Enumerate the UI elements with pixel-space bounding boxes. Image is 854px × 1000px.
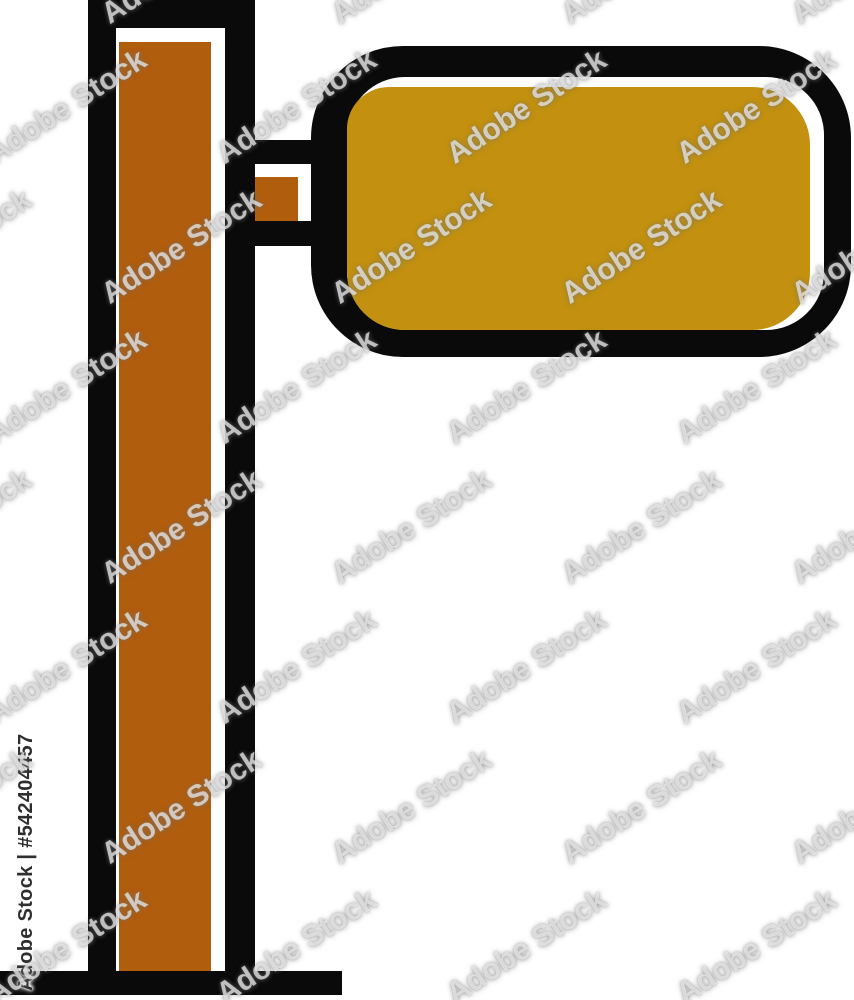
watermark-tile: Adobe Stock bbox=[0, 0, 38, 31]
signpost-base bbox=[0, 971, 342, 995]
watermark-tile: Adobe Stock bbox=[0, 183, 38, 311]
signpost-pole-fill bbox=[119, 42, 211, 971]
watermark-credit: Adobe Stock | #542404457 bbox=[15, 734, 38, 991]
watermark-tile: Adobe Stock bbox=[556, 743, 728, 871]
watermark-tile: Adobe Stock bbox=[326, 743, 498, 871]
watermark-tile: Adobe Stock bbox=[326, 0, 498, 31]
watermark-tile: Adobe Stock bbox=[441, 603, 613, 731]
stock-preview-canvas: Adobe Stock | #542404457 Adobe StockAdob… bbox=[0, 0, 854, 1000]
watermark-tile: Adobe Stock bbox=[671, 603, 843, 731]
watermark-tile: Adobe Stock bbox=[786, 743, 854, 871]
watermark-tile: Adobe Stock bbox=[441, 883, 613, 1000]
watermark-tile: Adobe Stock bbox=[0, 743, 38, 871]
watermark-tile: Adobe Stock bbox=[326, 463, 498, 591]
sign-board-fill bbox=[347, 87, 810, 330]
watermark-tile: Adobe Stock bbox=[786, 463, 854, 591]
watermark-tile: Adobe Stock bbox=[556, 463, 728, 591]
watermark-tile: Adobe Stock bbox=[556, 0, 728, 31]
watermark-tile: Adobe Stock bbox=[786, 0, 854, 31]
sign-bracket-fill bbox=[255, 177, 298, 221]
watermark-tile: Adobe Stock bbox=[671, 883, 843, 1000]
watermark-tile: Adobe Stock bbox=[0, 463, 38, 591]
